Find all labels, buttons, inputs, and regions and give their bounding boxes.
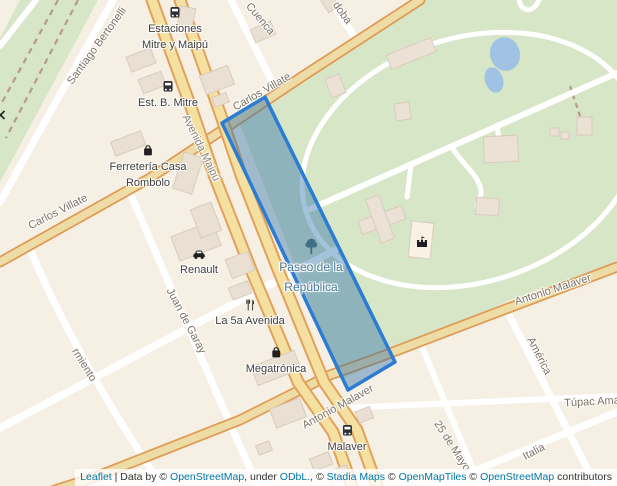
poi-label: Renault [180, 262, 218, 278]
level-crossing-icon [0, 110, 6, 120]
poi-estaciones-mitre-maipu: Estaciones Mitre y Maipú [142, 6, 208, 53]
poi-label: Est. B. Mitre [138, 95, 198, 111]
bus-icon [169, 6, 181, 19]
attribution-text: , under [244, 471, 280, 483]
poi-megatronica: Megatrónica [246, 347, 307, 377]
osm-link-2[interactable]: OpenStreetMap [480, 471, 554, 483]
map-canvas[interactable]: Santiago Bertonelli Cuenca doba Carlos V… [0, 0, 617, 486]
poi-renault: Renault [180, 249, 218, 278]
attribution-text: , © [310, 471, 327, 483]
openmaptiles-link[interactable]: OpenMapTiles [399, 471, 467, 483]
car-icon [192, 249, 206, 260]
odbl-link[interactable]: ODbL. [280, 471, 310, 483]
poi-level-crossing [0, 110, 6, 122]
poi-ferreteria-casa-rombolo: Ferretería Casa Rombolo [109, 145, 186, 191]
bus-icon [162, 80, 174, 93]
poi-malaver-stop: Malaver [327, 424, 366, 455]
attribution-text: © [467, 471, 481, 483]
poi-label: Mitre y Maipú [142, 37, 208, 53]
park-label: Paseo de la [279, 257, 342, 277]
bus-icon [341, 424, 353, 437]
poi-label: Estaciones [148, 21, 202, 37]
attribution-text: | Data by © [112, 471, 170, 483]
poi-park-attraction [416, 236, 429, 250]
poi-label: Megatrónica [246, 361, 307, 377]
shopping-bag-icon [143, 145, 154, 157]
poi-la-5a-avenida: La 5a Avenida [215, 299, 285, 329]
attribution-text: contributors [554, 471, 612, 483]
poi-est-b-mitre: Est. B. Mitre [138, 80, 198, 111]
poi-label: La 5a Avenida [215, 313, 285, 329]
restaurant-icon [245, 299, 255, 311]
attribution-bar: Leaflet | Data by © OpenStreetMap, under… [75, 469, 617, 486]
osm-link-1[interactable]: OpenStreetMap [170, 471, 244, 483]
attribution-text: © [385, 471, 399, 483]
stadia-maps-link[interactable]: Stadia Maps [327, 471, 385, 483]
poi-label: Malaver [327, 439, 366, 455]
shopping-bag-icon [270, 347, 281, 359]
poi-label: Rombolo [126, 175, 170, 191]
poi-label: Ferretería Casa [109, 159, 186, 175]
park-label: República [284, 277, 337, 297]
leaflet-link[interactable]: Leaflet [80, 471, 112, 483]
poi-paseo-de-la-republica: Paseo de la República [279, 238, 342, 297]
tree-icon [304, 238, 318, 255]
castle-icon [416, 236, 429, 248]
